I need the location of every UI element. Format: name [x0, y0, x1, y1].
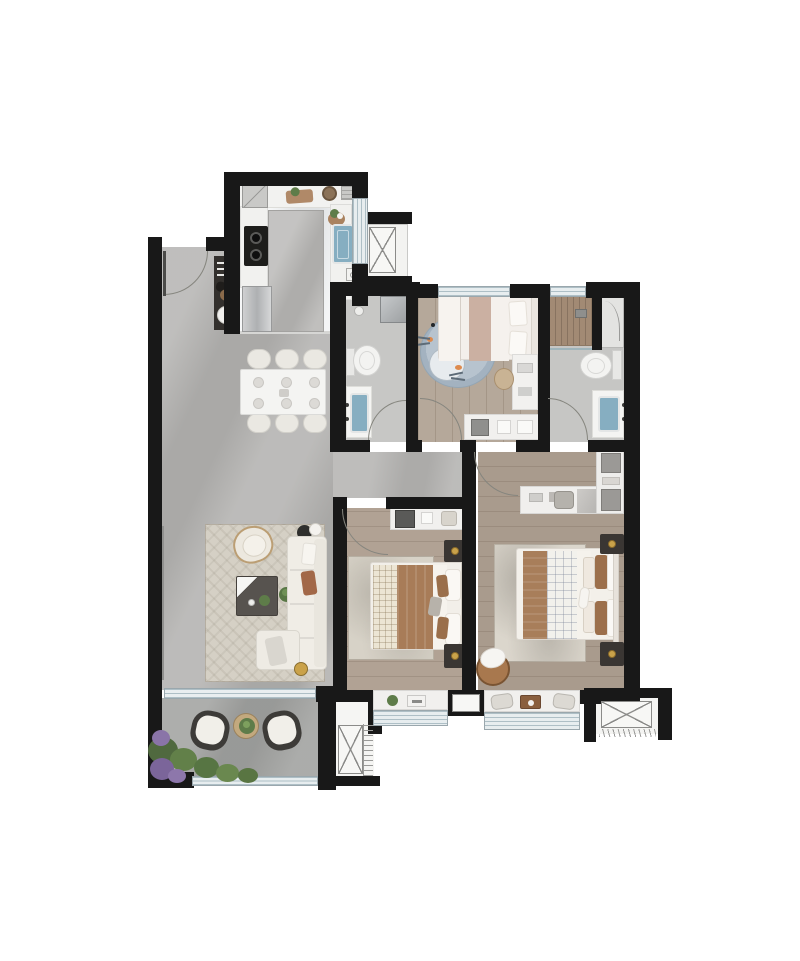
ac-unit-x-box — [601, 701, 652, 728]
shrub — [216, 764, 239, 782]
wall — [330, 440, 370, 452]
toilet-master-bowl — [580, 352, 612, 379]
wall — [462, 452, 476, 704]
wall — [333, 497, 347, 702]
kids-bed — [438, 296, 542, 360]
toilet-master-tank — [612, 350, 622, 380]
cooking-pot — [322, 186, 337, 201]
floor-plan — [0, 0, 800, 961]
master-wardrobe — [596, 448, 624, 514]
bay-window-sill-center — [373, 690, 448, 710]
wall — [364, 212, 412, 224]
place-setting — [253, 398, 264, 409]
fridge — [242, 184, 268, 208]
center-bed — [370, 562, 468, 650]
table-plant-highlight — [243, 721, 250, 728]
pillow-brown — [436, 616, 449, 639]
kids-desk-chair — [494, 368, 514, 390]
throw-checkered — [373, 565, 397, 649]
place-setting — [253, 377, 264, 388]
sofa-chaise — [256, 630, 300, 670]
totoro-eye — [431, 323, 435, 327]
wall — [658, 688, 672, 740]
wall — [352, 172, 368, 198]
wall — [330, 282, 346, 452]
window — [352, 198, 368, 264]
window — [438, 286, 510, 297]
pillow-patterned — [583, 557, 595, 589]
dining-chair — [275, 349, 299, 369]
ac-unit-x-box — [369, 227, 396, 273]
guest-bath-drain — [354, 306, 364, 316]
wall — [584, 698, 596, 742]
kitchen-sink — [332, 224, 354, 264]
duvet-plaid — [547, 551, 577, 639]
sliding-door-balcony — [164, 688, 316, 699]
toilet-guest-bowl — [353, 345, 381, 376]
kids-pillow — [508, 330, 528, 356]
dresser-deco — [421, 512, 433, 524]
place-setting — [309, 377, 320, 388]
dresser-deco — [497, 420, 511, 434]
sill-cushion — [552, 693, 576, 711]
nightstand — [600, 534, 624, 554]
sheet-white — [491, 297, 509, 361]
nightstand-lamp — [608, 650, 616, 658]
flower-white — [337, 213, 343, 219]
dining-chair — [303, 413, 327, 433]
armchair-seat — [240, 531, 270, 559]
place-setting — [281, 398, 292, 409]
wall — [516, 440, 550, 452]
wardrobe-shelf-items — [602, 477, 620, 485]
shrub — [170, 748, 197, 771]
coffee-table-plant — [259, 595, 270, 606]
kitchen-island — [268, 210, 324, 332]
desk-item — [518, 387, 532, 396]
dining-table — [240, 369, 326, 415]
flower-lavender — [168, 769, 186, 783]
dresser-tv — [471, 419, 489, 436]
window — [550, 286, 586, 297]
wall — [406, 440, 422, 452]
chaise-throw — [264, 635, 287, 666]
stove — [244, 226, 268, 266]
sill-radio — [407, 695, 426, 707]
ladder-hatch — [363, 724, 373, 776]
sill-cushion — [490, 693, 514, 711]
place-setting — [281, 377, 292, 388]
table-centerpiece — [279, 389, 289, 397]
kids-dresser — [464, 414, 540, 440]
wall — [386, 497, 470, 509]
tray-cup — [528, 700, 534, 706]
wall — [224, 172, 240, 334]
blanket-tan-band — [469, 297, 491, 361]
diagonal-hatch — [599, 729, 656, 737]
burner — [250, 232, 262, 244]
toilet-seat-line — [587, 358, 605, 374]
bay-inset-box — [452, 694, 480, 712]
coffee-table-cup — [248, 599, 255, 606]
sofa-seam-2 — [290, 603, 314, 605]
laundry-basket — [476, 652, 510, 686]
wall — [334, 776, 380, 786]
wardrobe-panel — [601, 453, 621, 473]
sofa-back-cushion — [314, 539, 326, 667]
dresser-basket — [441, 511, 457, 526]
wall — [224, 172, 366, 186]
radio-detail — [412, 700, 422, 703]
sink-basin-line — [337, 230, 349, 259]
duvet-fold — [439, 297, 461, 361]
pillow-brown — [436, 574, 449, 597]
wall — [588, 440, 640, 452]
wall — [624, 452, 640, 704]
dining-chair — [303, 349, 327, 369]
dresser-tv — [395, 510, 415, 528]
sink-guest — [350, 393, 369, 433]
sink-master — [598, 396, 620, 432]
shrub — [238, 768, 258, 783]
table-lamp — [309, 523, 322, 536]
dining-chair — [247, 413, 271, 433]
toilet-seat-line — [359, 351, 375, 370]
nightstand — [600, 642, 624, 666]
wall — [624, 294, 640, 454]
ac-unit-x-box — [338, 725, 363, 774]
shower-fixture — [575, 309, 587, 318]
wall — [592, 294, 602, 350]
shaft-water-heater — [600, 296, 624, 348]
headboard — [613, 547, 619, 643]
sill-tray — [520, 695, 541, 709]
wall — [406, 286, 418, 452]
dining-chair — [275, 413, 299, 433]
master-bed — [516, 548, 618, 640]
bed-runner-brown — [523, 551, 547, 639]
coffee-table — [236, 576, 278, 616]
dishwasher — [242, 286, 272, 332]
nightstand-lamp — [451, 652, 459, 660]
place-setting — [309, 398, 320, 409]
flower-lavender — [152, 730, 170, 746]
kids-pillow — [508, 300, 528, 326]
floor-corridor — [333, 452, 464, 498]
totoro-whisker — [417, 342, 430, 346]
bay-window-sill-master — [484, 690, 580, 712]
sofa-pillow-white — [301, 542, 317, 565]
wall — [460, 440, 476, 452]
nightstand-lamp — [608, 540, 616, 548]
floor-lamp — [294, 662, 308, 676]
totoro-cheek — [455, 365, 462, 370]
wall — [148, 237, 162, 697]
bath-mirror-cabinet — [380, 296, 407, 323]
burner — [250, 249, 262, 261]
center-dresser — [390, 506, 466, 530]
nightstand-lamp — [451, 547, 459, 555]
balcony-table — [233, 713, 259, 739]
door-leaf-entry — [163, 251, 166, 296]
console-deco — [529, 493, 543, 502]
window — [373, 710, 448, 726]
vanity-master — [592, 390, 624, 438]
desk-item — [517, 363, 533, 373]
cutting-board — [286, 189, 314, 204]
shower-glass — [548, 348, 594, 350]
totoro-whisker — [451, 377, 465, 381]
window — [484, 712, 580, 730]
chair-cushion — [193, 713, 226, 746]
sill-plant — [387, 695, 398, 706]
kids-desk — [512, 354, 538, 410]
blanket-brown — [397, 565, 433, 649]
shower-floor — [548, 296, 592, 346]
dresser-deco — [517, 420, 533, 434]
wardrobe-panel — [601, 489, 621, 511]
master-stool — [554, 491, 574, 509]
vegetables — [290, 187, 300, 197]
dining-chair — [247, 349, 271, 369]
shaft-duct-line — [603, 301, 620, 341]
chair-cushion — [265, 713, 298, 746]
